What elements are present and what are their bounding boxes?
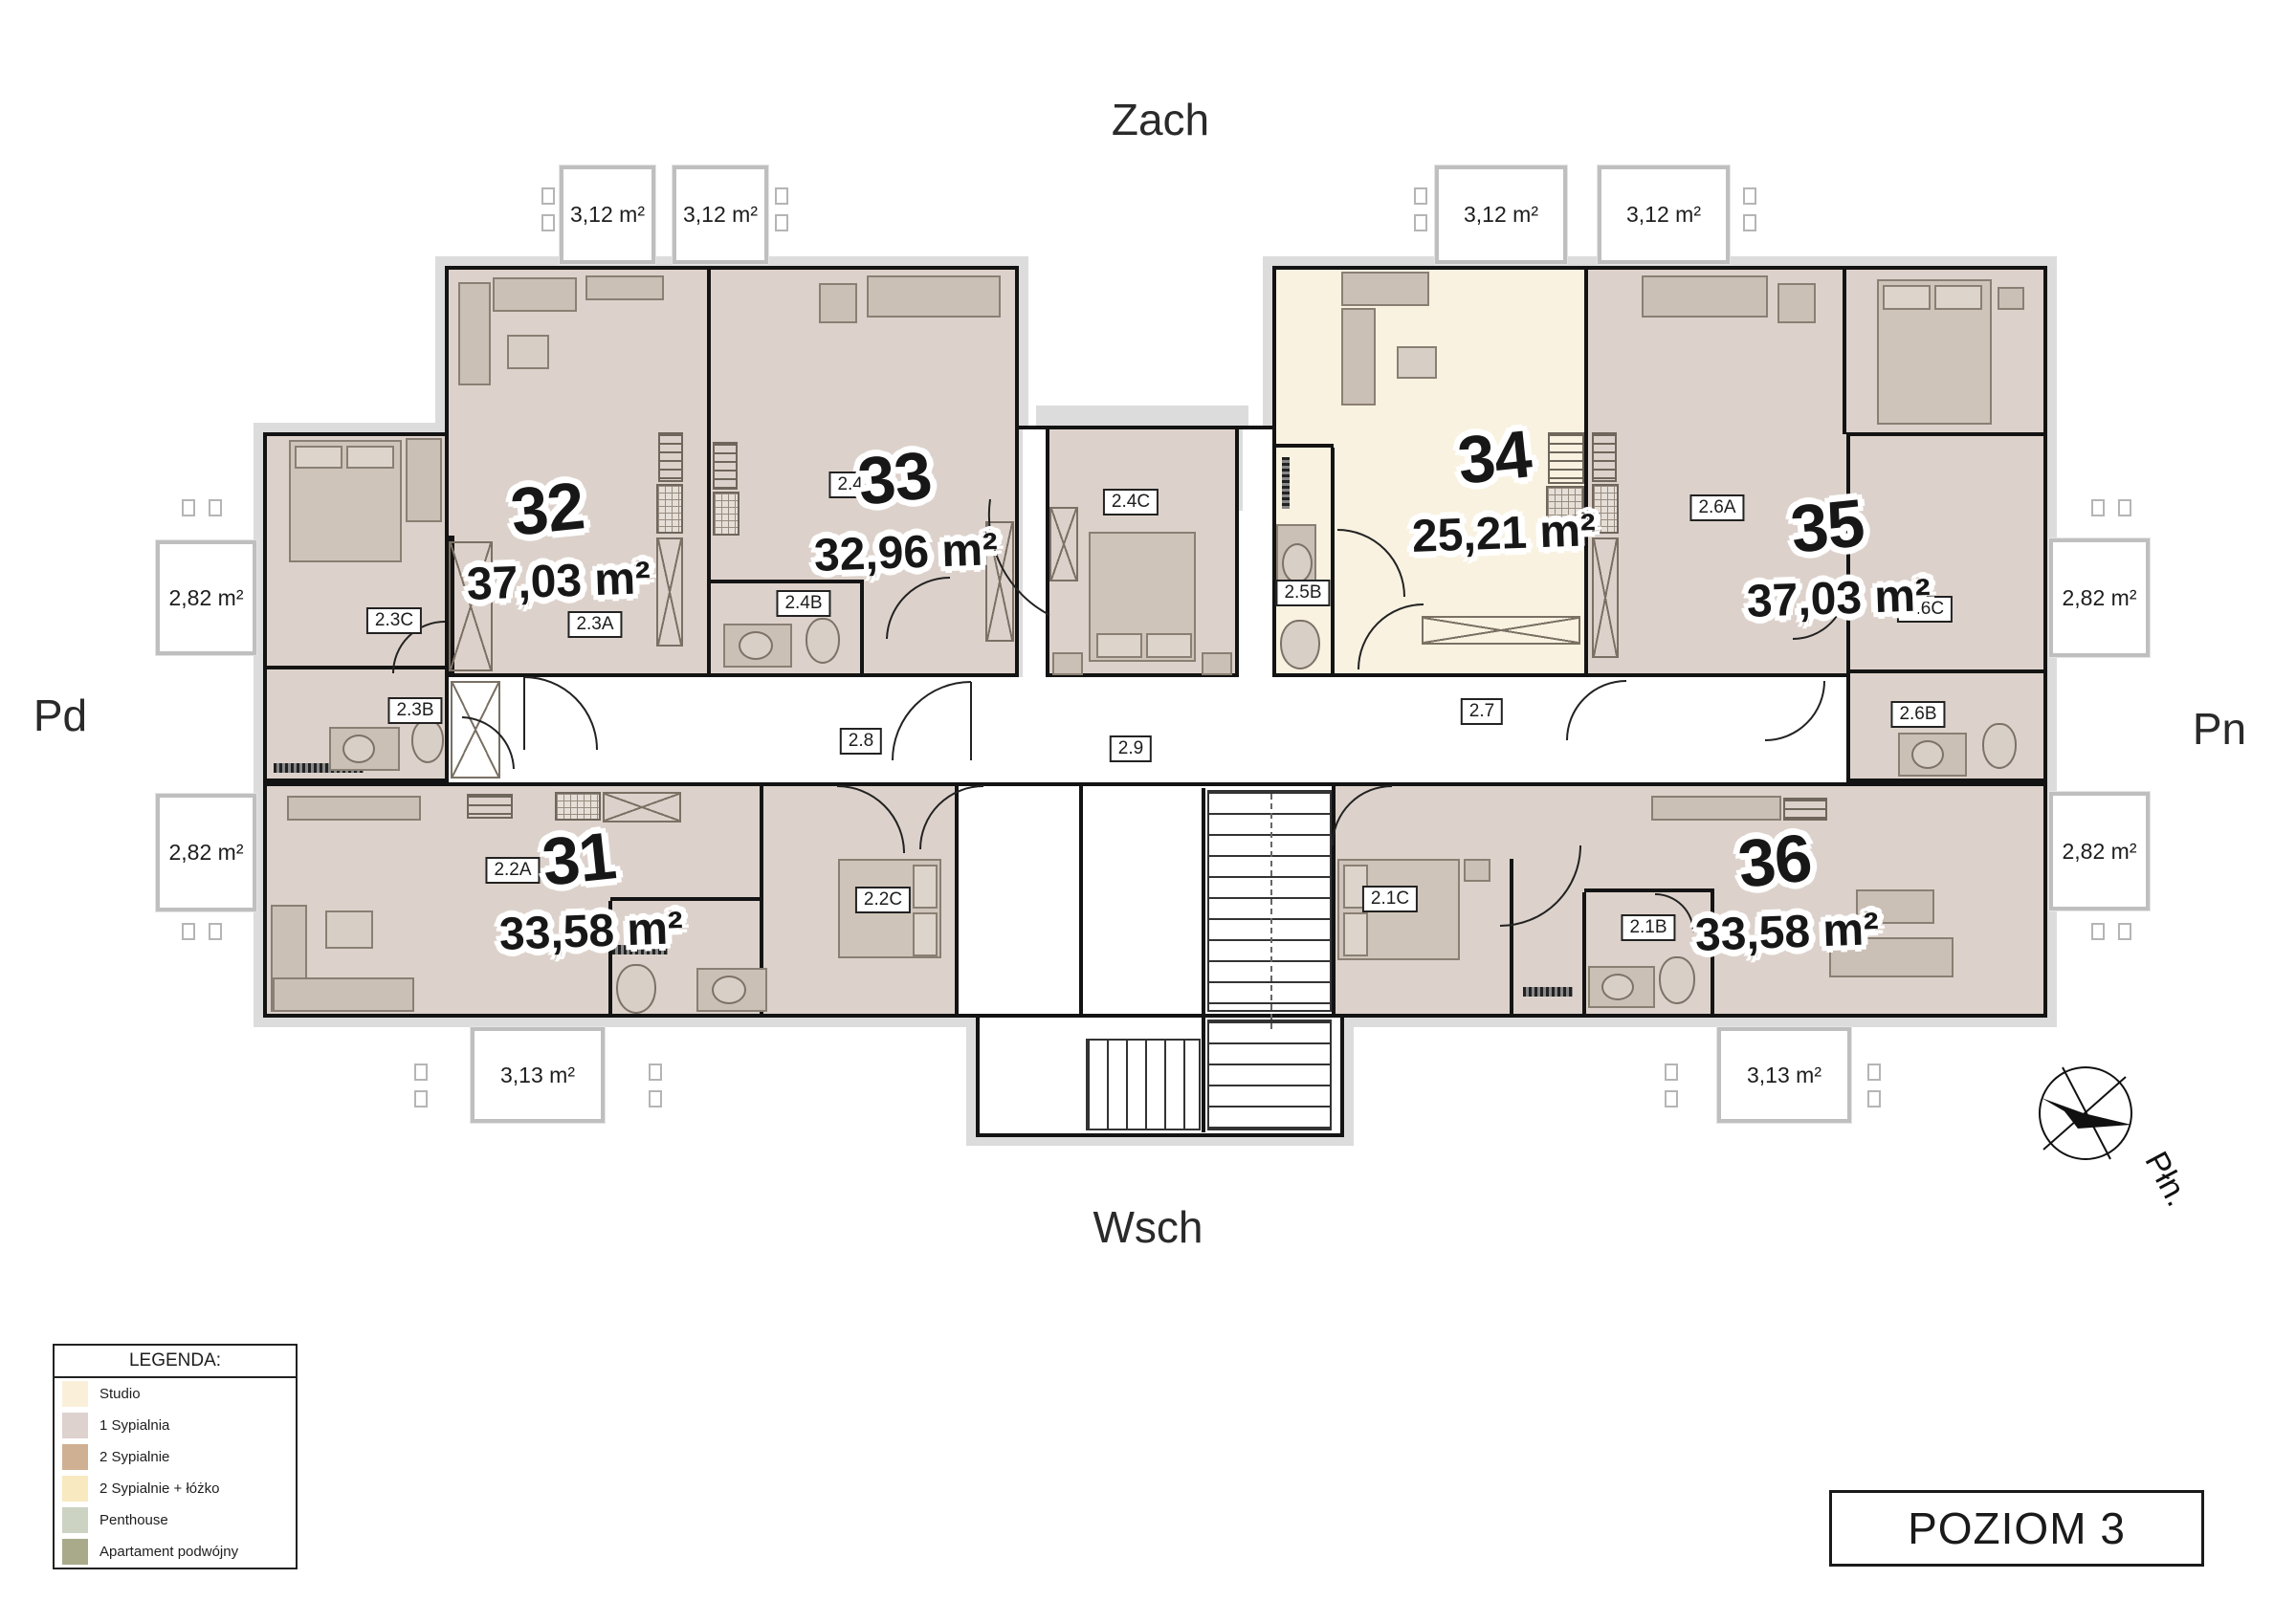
room-label-2-1C: 2.1C (1362, 886, 1418, 912)
window-vent-marker (414, 1064, 428, 1081)
balcony-area-label: 3,12 m² (1464, 202, 1538, 228)
pillow (913, 865, 938, 909)
apartment-35-number: 35 (1787, 484, 1867, 567)
coffee-table (507, 335, 549, 369)
balcony-area-label: 2,82 m² (169, 585, 244, 611)
window-vent-marker (2118, 923, 2131, 940)
vestibule-block (955, 782, 1083, 1018)
corridor (449, 677, 1846, 782)
wall (1202, 788, 1205, 1132)
balcony-left-1: 2,82 m² (156, 540, 256, 655)
balcony-top-2: 3,12 m² (673, 165, 768, 264)
wall (1843, 270, 1846, 434)
balcony-right-1: 2,82 m² (2049, 538, 2150, 657)
legend-item: Penthouse (55, 1504, 296, 1536)
toilet (411, 719, 444, 763)
direction-east-label: Wsch (1093, 1201, 1203, 1253)
pillow (1096, 633, 1142, 658)
room-label-2-2C: 2.2C (855, 887, 911, 913)
legend-swatch-studio (62, 1381, 88, 1407)
window-vent-marker (182, 923, 195, 940)
kitchen-appliance (467, 794, 513, 819)
balcony-area-label: 2,82 m² (2063, 585, 2137, 611)
legend-item: 1 Sypialnia (55, 1410, 296, 1441)
corridor-niche (1023, 429, 1046, 677)
wall (267, 666, 445, 669)
compass-rose-icon (2030, 1058, 2141, 1169)
sink (739, 631, 773, 660)
wall (1850, 669, 2043, 673)
window-vent-marker (775, 187, 788, 205)
window-vent-marker (414, 1090, 428, 1108)
coffee-table (325, 910, 373, 949)
legend-swatch-2-sypialnie-lozko (62, 1476, 88, 1502)
balcony-bottom-2: 3,13 m² (1717, 1027, 1851, 1123)
apartment-32-number: 32 (507, 467, 587, 550)
window-vent-marker (1665, 1090, 1678, 1108)
sink (1282, 543, 1313, 583)
wall (1019, 426, 1049, 429)
wall (1274, 444, 1334, 448)
closet (1422, 616, 1580, 645)
balcony-area-label: 3,12 m² (570, 202, 645, 228)
tv-unit (585, 275, 664, 300)
kitchen-appliance (1592, 432, 1617, 482)
legend-swatch-apartament-podwojny (62, 1539, 88, 1565)
legend-item: 2 Sypialnie (55, 1441, 296, 1473)
shaft (451, 681, 500, 779)
apartment-34-area: 25,21 m² (1411, 504, 1597, 563)
apartment-34-number: 34 (1454, 415, 1534, 498)
window-vent-marker (2091, 923, 2105, 940)
stair-flight (1207, 790, 1332, 1012)
nightstand (1464, 859, 1490, 882)
window-vent-marker (649, 1090, 662, 1108)
sofa (458, 282, 491, 385)
wall (1582, 892, 1586, 1018)
sofa (493, 277, 577, 312)
corridor-niche (1243, 429, 1272, 677)
sink (712, 976, 746, 1004)
balcony-top-4: 3,12 m² (1598, 165, 1730, 264)
nightstand (1202, 652, 1232, 675)
legend-label: Studio (99, 1386, 141, 1402)
sofa (1341, 308, 1376, 406)
pillow (1883, 285, 1931, 310)
window-vent-marker (2091, 499, 2105, 516)
kitchen-counter (555, 792, 601, 821)
legend-title: LEGENDA: (55, 1346, 296, 1378)
toilet (1280, 620, 1320, 669)
balcony-area-label: 3,12 m² (683, 202, 758, 228)
room-label-2-6B: 2.6B (1890, 701, 1945, 728)
window-vent-marker (1414, 214, 1427, 231)
nightstand (1998, 287, 2024, 310)
kitchen-appliance (1783, 798, 1827, 821)
coffee-table (1397, 346, 1437, 379)
legend-label: Penthouse (99, 1512, 168, 1528)
wall (1239, 426, 1276, 429)
kitchen-counter (656, 484, 683, 534)
legend-label: Apartament podwójny (99, 1544, 238, 1560)
wall (860, 583, 864, 677)
armchair (1777, 283, 1816, 323)
window-vent-marker (209, 499, 222, 516)
wall (1331, 448, 1335, 677)
apartment-33-number: 33 (854, 436, 935, 519)
wall (1584, 888, 1714, 892)
pillow (295, 446, 342, 469)
sink (342, 735, 375, 763)
balcony-top-1: 3,12 m² (560, 165, 655, 264)
toilet (1659, 956, 1695, 1004)
room-label-2-5B: 2.5B (1275, 580, 1330, 606)
balcony-bottom-1: 3,13 m² (471, 1027, 605, 1123)
window-vent-marker (1665, 1064, 1678, 1081)
window-vent-marker (649, 1064, 662, 1081)
kitchen-appliance (713, 442, 738, 490)
legend-label: 2 Sypialnie + łóżko (99, 1480, 220, 1497)
apartment-36-area: 33,58 m² (1694, 903, 1880, 962)
wardrobe (406, 438, 442, 522)
window-vent-marker (1743, 214, 1756, 231)
pillow (1343, 912, 1368, 956)
balcony-right-2: 2,82 m² (2049, 792, 2150, 910)
toilet (806, 618, 840, 664)
apartment-35-area: 37,03 m² (1746, 569, 1932, 628)
balcony-area-label: 3,13 m² (500, 1063, 575, 1088)
direction-south-label: Pd (33, 690, 87, 741)
balcony-area-label: 2,82 m² (2063, 839, 2137, 865)
wall (1510, 859, 1513, 1018)
balcony-area-label: 2,82 m² (169, 840, 244, 866)
pillow (346, 446, 394, 469)
stair-guide-line (1270, 794, 1272, 1029)
room-label-2-3B: 2.3B (387, 697, 442, 724)
sofa (1642, 275, 1768, 318)
apartment-31-number: 31 (539, 817, 619, 900)
kitchen-appliance (1548, 432, 1584, 484)
level-badge: POZIOM 3 (1829, 1490, 2204, 1567)
apartment-31-area: 33,58 m² (498, 902, 684, 961)
legend-item: Apartament podwójny (55, 1536, 296, 1568)
wardrobe (656, 537, 683, 647)
legend: LEGENDA: Studio 1 Sypialnia 2 Sypialnie … (53, 1344, 298, 1569)
room-label-2-6A: 2.6A (1689, 494, 1744, 521)
room-label-2-9: 2.9 (1110, 735, 1152, 762)
radiator (1523, 987, 1573, 997)
pillow (1146, 633, 1192, 658)
balcony-area-label: 3,13 m² (1747, 1063, 1821, 1088)
window-vent-marker (2118, 499, 2131, 516)
closet (603, 792, 681, 822)
toilet (1982, 723, 2017, 769)
apartment-36-number: 36 (1734, 819, 1815, 902)
floor-plan-canvas: Zach Wsch Pd Pn 3,12 m² 3,12 m² 3,12 m² … (0, 0, 2296, 1623)
window-vent-marker (775, 214, 788, 231)
armchair (819, 283, 857, 323)
room-label-2-3A: 2.3A (567, 611, 622, 638)
radiator (1282, 457, 1290, 509)
sink (1601, 974, 1634, 1000)
room-label-2-4B: 2.4B (776, 590, 830, 617)
toilet (616, 964, 656, 1014)
window-vent-marker (1743, 187, 1756, 205)
pillow (913, 912, 938, 956)
stair-flight (1207, 1020, 1332, 1130)
kitchen-counter (713, 492, 740, 536)
room-label-2-8: 2.8 (840, 728, 882, 755)
legend-label: 2 Sypialnie (99, 1449, 169, 1465)
compass-north-label: Płn. (2137, 1146, 2197, 1213)
stair-flight (1086, 1039, 1201, 1130)
window-vent-marker (182, 499, 195, 516)
sofa (273, 977, 414, 1012)
window-vent-marker (1414, 187, 1427, 205)
room-label-2-3C: 2.3C (366, 607, 422, 634)
sink (1911, 740, 1944, 769)
room-label-2-4C: 2.4C (1103, 489, 1159, 515)
nightstand (1052, 652, 1083, 675)
wall (610, 897, 763, 901)
balcony-area-label: 3,12 m² (1626, 202, 1701, 228)
legend-swatch-1-sypialnia (62, 1413, 88, 1438)
room-label-2-1B: 2.1B (1621, 914, 1675, 941)
legend-label: 1 Sypialnia (99, 1417, 169, 1434)
kitchen-counter (287, 796, 421, 821)
window-vent-marker (541, 187, 555, 205)
wardrobe (1049, 507, 1078, 581)
kitchen-counter (1592, 484, 1619, 534)
window-vent-marker (541, 214, 555, 231)
apartment-32-area: 37,03 m² (466, 552, 651, 611)
window-vent-marker (1867, 1064, 1881, 1081)
legend-item: 2 Sypialnie + łóżko (55, 1473, 296, 1504)
kitchen-appliance (658, 432, 683, 482)
direction-north-label: Pn (2193, 703, 2246, 755)
sofa (867, 275, 1001, 318)
pillow (1934, 285, 1982, 310)
balcony-top-3: 3,12 m² (1435, 165, 1567, 264)
direction-west-label: Zach (1112, 94, 1209, 145)
apartment-33-area: 32,96 m² (813, 523, 999, 582)
balcony-left-2: 2,82 m² (156, 794, 256, 911)
window-vent-marker (1867, 1090, 1881, 1108)
legend-swatch-penthouse (62, 1507, 88, 1533)
room-label-2-7: 2.7 (1461, 698, 1503, 725)
sofa (1341, 272, 1429, 306)
kitchen-counter (1651, 796, 1781, 821)
room-label-2-2A: 2.2A (485, 857, 540, 884)
legend-swatch-2-sypialnie (62, 1444, 88, 1470)
legend-item: Studio (55, 1378, 296, 1410)
window-vent-marker (209, 923, 222, 940)
